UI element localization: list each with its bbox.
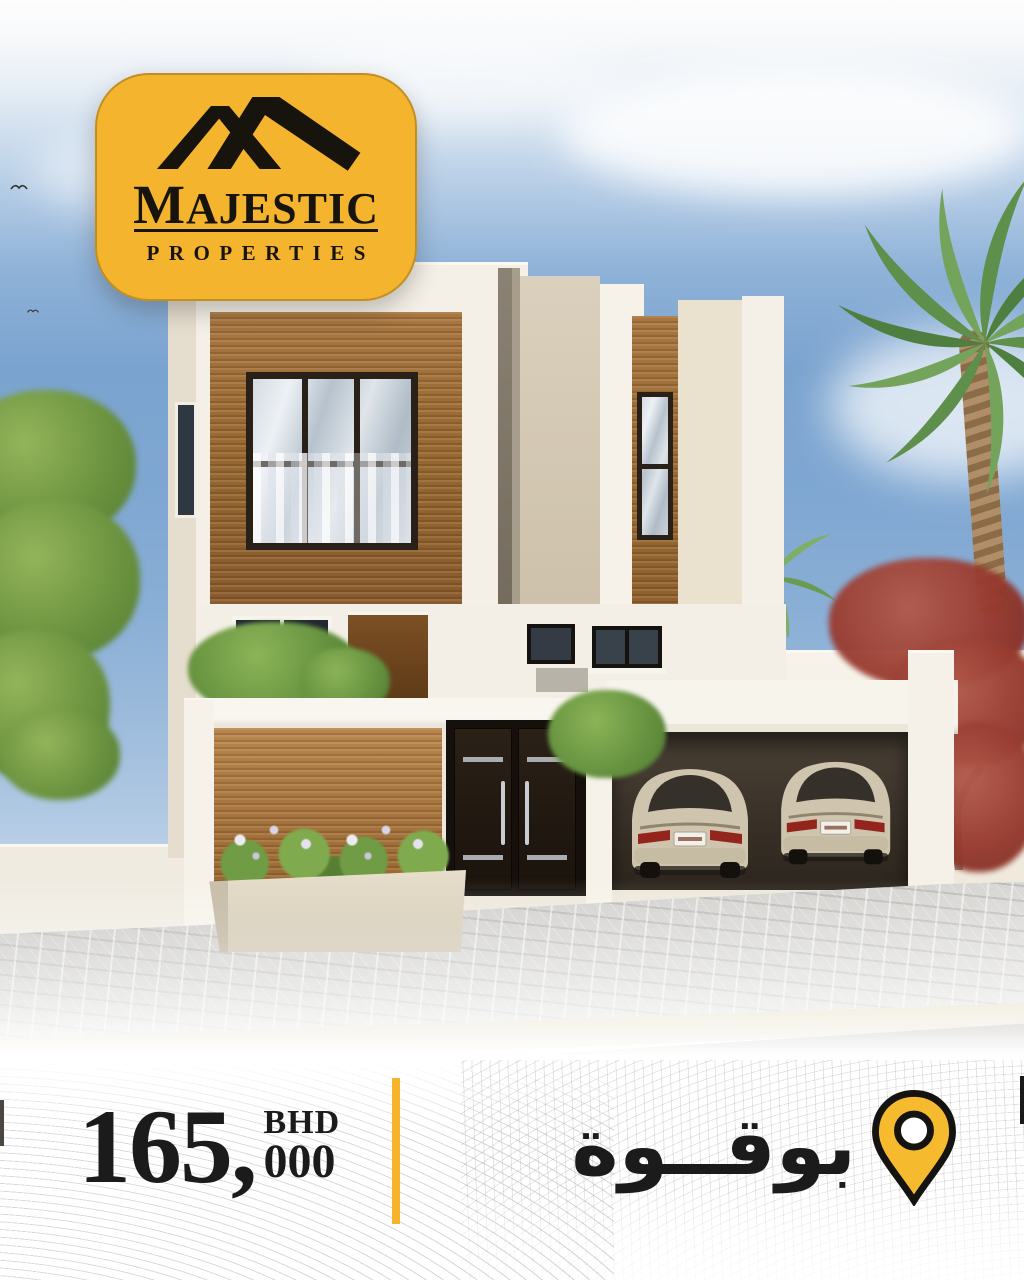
main-window (246, 372, 418, 550)
brand-title: MAJESTIC (97, 177, 415, 232)
bird-icon (10, 182, 28, 192)
tall-window (637, 392, 673, 540)
parked-cars (616, 742, 904, 888)
door-handle (525, 781, 529, 845)
info-band: 165, BHD 000 بوقــوة (0, 1060, 1024, 1280)
location-pin-icon (870, 1088, 958, 1206)
curtains (253, 453, 411, 543)
edge-mark-right (1020, 1076, 1024, 1124)
balcony-panel (536, 668, 588, 692)
brand-logo: MAJESTIC PROPERTIES (95, 73, 417, 301)
door-handle (501, 781, 505, 845)
bottom-fade (0, 878, 1024, 1080)
palm-tree-crown (795, 158, 1024, 538)
bird-icon (27, 308, 40, 315)
location: بوقــوة (571, 1088, 958, 1206)
price-main: 165, (78, 1104, 256, 1191)
entry-bush (548, 690, 666, 778)
divider-bar (392, 1078, 400, 1224)
green-tree (0, 380, 190, 810)
logo-rule (134, 229, 378, 232)
planter-flowers (222, 818, 448, 872)
roof-icon (148, 91, 364, 175)
price: 165, BHD 000 (78, 1104, 340, 1191)
mid-window-pair (592, 626, 662, 668)
mid-window-center (527, 624, 575, 664)
side-window (175, 402, 197, 518)
price-thousands: 000 (264, 1140, 341, 1184)
brand-subtitle: PROPERTIES (97, 241, 415, 266)
edge-mark-left (0, 1100, 4, 1146)
entry-door-left (454, 728, 512, 890)
property-ad-poster: MAJESTIC PROPERTIES 165, BHD 000 بوقــوة (0, 0, 1024, 1280)
location-name: بوقــوة (571, 1088, 856, 1206)
